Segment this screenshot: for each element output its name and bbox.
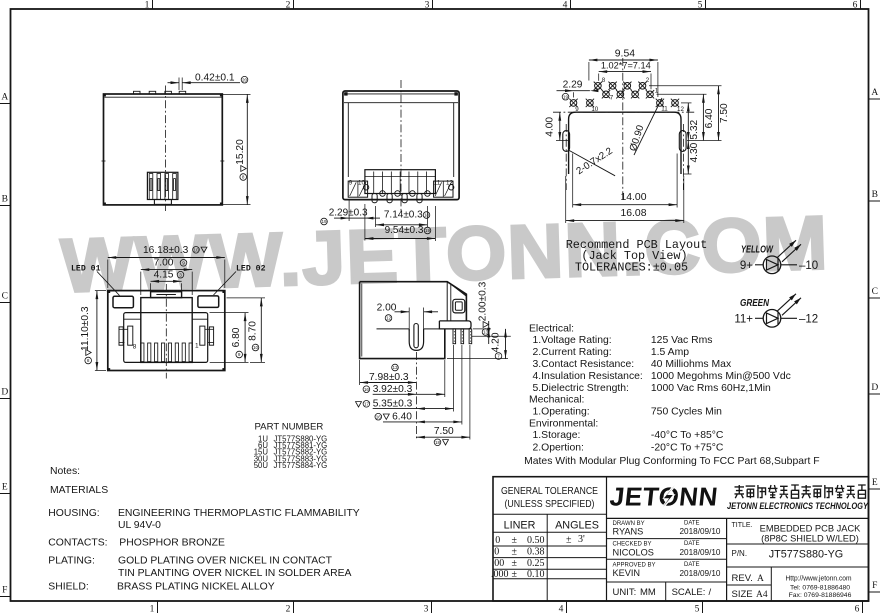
svg-text:C: C bbox=[872, 287, 878, 297]
svg-text:5: 5 bbox=[698, 1, 703, 11]
svg-text:13: 13 bbox=[392, 365, 398, 370]
svg-text:Notes:: Notes: bbox=[50, 466, 80, 477]
svg-text:7: 7 bbox=[497, 354, 500, 359]
svg-text:Electrical:: Electrical: bbox=[529, 323, 574, 334]
svg-text:.000: .000 bbox=[491, 569, 509, 580]
svg-text:11.10±0.3: 11.10±0.3 bbox=[80, 306, 91, 351]
svg-text:7: 7 bbox=[610, 95, 614, 102]
svg-text:1.Storage:: 1.Storage: bbox=[533, 430, 581, 441]
svg-text:-40°C To +85°C: -40°C To +85°C bbox=[651, 430, 724, 441]
svg-text:4: 4 bbox=[563, 1, 568, 11]
svg-text:4.20: 4.20 bbox=[491, 332, 502, 352]
svg-text:±: ± bbox=[566, 535, 572, 546]
svg-text:1000 Vac Rms 60Hz,1Min: 1000 Vac Rms 60Hz,1Min bbox=[651, 383, 771, 394]
svg-text:±: ± bbox=[512, 558, 518, 569]
svg-text:A4: A4 bbox=[756, 590, 768, 600]
svg-text:A: A bbox=[871, 88, 878, 98]
svg-text:2.29±0.3: 2.29±0.3 bbox=[329, 207, 368, 218]
svg-text:±: ± bbox=[512, 535, 518, 546]
svg-text:/: / bbox=[709, 587, 712, 598]
svg-text:YELLOW: YELLOW bbox=[741, 244, 774, 255]
svg-text:16.18±0.3: 16.18±0.3 bbox=[143, 245, 189, 256]
svg-text:7.98±0.3: 7.98±0.3 bbox=[369, 372, 409, 383]
svg-text:Mates With Modular Plug Confor: Mates With Modular Plug Conforming To FC… bbox=[524, 456, 819, 467]
svg-text:1: 1 bbox=[150, 605, 155, 613]
svg-text:16: 16 bbox=[376, 414, 382, 419]
svg-text:.00: .00 bbox=[492, 558, 505, 569]
svg-text:4: 4 bbox=[559, 605, 564, 613]
svg-text:11: 11 bbox=[434, 180, 441, 187]
svg-text:0.50: 0.50 bbox=[527, 535, 545, 546]
svg-text:8: 8 bbox=[242, 175, 245, 180]
svg-text:6.80: 6.80 bbox=[231, 327, 242, 347]
svg-text:DATE: DATE bbox=[684, 562, 700, 568]
svg-text:UL 94V-0: UL 94V-0 bbox=[118, 520, 161, 531]
svg-text:Tel: 0769-81886480: Tel: 0769-81886480 bbox=[790, 585, 850, 592]
svg-text:6: 6 bbox=[855, 605, 860, 613]
svg-text:3: 3 bbox=[179, 272, 182, 277]
svg-text:3.92±0.3: 3.92±0.3 bbox=[373, 384, 413, 395]
svg-text:9.54±0.3: 9.54±0.3 bbox=[385, 225, 424, 236]
svg-text:Mechanical:: Mechanical: bbox=[529, 395, 584, 406]
svg-text:4.30: 4.30 bbox=[689, 142, 700, 162]
svg-text:0: 0 bbox=[495, 535, 500, 546]
svg-text:7.00: 7.00 bbox=[154, 258, 174, 269]
svg-text:C: C bbox=[2, 292, 8, 302]
svg-text:8: 8 bbox=[87, 358, 90, 363]
svg-text:2: 2 bbox=[286, 1, 291, 11]
svg-text:2.Opertion:: 2.Opertion: bbox=[533, 443, 584, 454]
svg-text:1: 1 bbox=[195, 343, 199, 350]
svg-text:Environmental:: Environmental: bbox=[529, 418, 598, 429]
svg-text:JT577S884-YG: JT577S884-YG bbox=[274, 461, 328, 470]
svg-text:P/N.: P/N. bbox=[732, 549, 748, 558]
svg-text:7.50: 7.50 bbox=[434, 426, 454, 437]
svg-text:4.00: 4.00 bbox=[544, 117, 555, 137]
svg-text:3.Contact Resistance:: 3.Contact Resistance: bbox=[533, 359, 635, 370]
svg-text:.0: .0 bbox=[492, 547, 500, 558]
svg-text:2018/09/10: 2018/09/10 bbox=[680, 569, 721, 578]
svg-text:13: 13 bbox=[483, 330, 489, 335]
svg-text:D: D bbox=[1, 388, 8, 398]
svg-text:-20°C To +75°C: -20°C To +75°C bbox=[651, 443, 724, 454]
svg-text:18: 18 bbox=[435, 440, 441, 445]
svg-text:JT577S880-YG: JT577S880-YG bbox=[769, 549, 843, 561]
svg-text:GOLD PLATING OVER NICKEL IN CO: GOLD PLATING OVER NICKEL IN CONTACT bbox=[118, 555, 333, 566]
svg-text:8: 8 bbox=[133, 344, 137, 351]
svg-text:10: 10 bbox=[591, 106, 598, 113]
svg-text:1.5 Amp: 1.5 Amp bbox=[651, 347, 689, 358]
svg-text:–10: –10 bbox=[799, 260, 818, 272]
svg-text:PHOSPHOR BRONZE: PHOSPHOR BRONZE bbox=[119, 537, 225, 548]
svg-text:9: 9 bbox=[238, 352, 241, 357]
svg-text:9+: 9+ bbox=[740, 260, 753, 272]
svg-text:F: F bbox=[2, 586, 7, 596]
svg-text:9: 9 bbox=[349, 180, 353, 187]
svg-text:LED 01: LED 01 bbox=[71, 264, 101, 273]
svg-text:2018/09/10: 2018/09/10 bbox=[680, 527, 721, 536]
svg-text:15.20: 15.20 bbox=[235, 139, 246, 165]
svg-text:GENERAL TOLERANCE: GENERAL TOLERANCE bbox=[501, 486, 598, 497]
svg-text:HOUSING:: HOUSING: bbox=[48, 508, 99, 519]
svg-text:E: E bbox=[2, 483, 8, 493]
svg-text:(UNLESS SPECIFIED): (UNLESS SPECIFIED) bbox=[505, 499, 595, 510]
svg-text:6.40: 6.40 bbox=[392, 412, 412, 423]
svg-text:(8P8C SHIELD W/LED): (8P8C SHIELD W/LED) bbox=[761, 533, 859, 543]
svg-text:TITLE.: TITLE. bbox=[732, 522, 753, 529]
svg-text:4.Insulation Resistance:: 4.Insulation Resistance: bbox=[533, 371, 643, 382]
svg-text:SCALE:: SCALE: bbox=[672, 587, 706, 598]
svg-text:14.00: 14.00 bbox=[620, 192, 646, 203]
svg-text:A: A bbox=[757, 574, 764, 584]
svg-text:5: 5 bbox=[695, 605, 700, 613]
svg-text:125 Vac Rms: 125 Vac Rms bbox=[651, 335, 713, 346]
svg-text:10: 10 bbox=[193, 247, 199, 252]
svg-text:±: ± bbox=[512, 569, 518, 580]
svg-text:E: E bbox=[872, 478, 878, 488]
svg-text:1: 1 bbox=[145, 1, 150, 11]
svg-text:18: 18 bbox=[424, 213, 430, 218]
svg-text:DATE: DATE bbox=[684, 520, 700, 526]
svg-text:6: 6 bbox=[853, 1, 858, 11]
svg-text:±: ± bbox=[512, 547, 518, 558]
svg-text:19: 19 bbox=[563, 94, 569, 99]
svg-text:0.25: 0.25 bbox=[527, 558, 545, 569]
svg-text:1.02*7=7.14: 1.02*7=7.14 bbox=[601, 61, 651, 71]
svg-text:BRASS PLATING NICKEL ALLOY: BRASS PLATING NICKEL ALLOY bbox=[117, 582, 275, 593]
svg-text:9: 9 bbox=[182, 260, 185, 265]
svg-text:EMBEDDED PCB JACK: EMBEDDED PCB JACK bbox=[760, 524, 862, 534]
svg-text:9.54: 9.54 bbox=[615, 48, 635, 59]
svg-text:16: 16 bbox=[364, 387, 370, 392]
svg-text:2.00±0.3: 2.00±0.3 bbox=[478, 281, 489, 321]
svg-text:2.29: 2.29 bbox=[563, 79, 583, 90]
svg-text:11+: 11+ bbox=[734, 314, 753, 326]
svg-text:Fax: 0769-81886946: Fax: 0769-81886946 bbox=[789, 592, 852, 599]
svg-text:1.Operating:: 1.Operating: bbox=[533, 407, 590, 418]
svg-text:11: 11 bbox=[661, 106, 668, 113]
svg-text:750 Cycles Min: 750 Cycles Min bbox=[651, 407, 722, 418]
svg-text:RYANS: RYANS bbox=[613, 527, 644, 537]
svg-text:TIN PLANTING OVER NICKEL IN SO: TIN PLANTING OVER NICKEL IN SOLDER AREA bbox=[118, 568, 352, 579]
svg-text:B: B bbox=[2, 195, 8, 205]
svg-text:Http://www.jetonn.com: Http://www.jetonn.com bbox=[786, 576, 852, 583]
svg-text:40 Milliohms Max: 40 Milliohms Max bbox=[651, 359, 732, 370]
svg-text:17: 17 bbox=[364, 401, 370, 406]
svg-text:5.Dielectric Strength:: 5.Dielectric Strength: bbox=[533, 383, 629, 394]
svg-text:2: 2 bbox=[646, 77, 650, 84]
svg-text:12: 12 bbox=[386, 316, 392, 321]
svg-text:PLATING:: PLATING: bbox=[48, 555, 95, 566]
svg-text:SIZE: SIZE bbox=[732, 589, 753, 600]
svg-text:8: 8 bbox=[602, 77, 606, 84]
svg-text:MM: MM bbox=[640, 587, 656, 598]
svg-text:5.32: 5.32 bbox=[689, 119, 700, 139]
svg-text:2.00: 2.00 bbox=[377, 303, 397, 314]
svg-text:0.10: 0.10 bbox=[527, 569, 545, 580]
svg-text:3: 3 bbox=[425, 1, 430, 11]
svg-text:12: 12 bbox=[677, 106, 684, 113]
svg-text:0.38: 0.38 bbox=[527, 547, 545, 558]
svg-text:ENGINEERING THERMOPLASTIC FLAM: ENGINEERING THERMOPLASTIC FLAMMABILITY bbox=[118, 508, 360, 519]
svg-text:6.40: 6.40 bbox=[704, 108, 715, 128]
svg-text:5.35±0.3: 5.35±0.3 bbox=[373, 399, 413, 410]
svg-text:DATE: DATE bbox=[684, 541, 700, 547]
svg-text:19: 19 bbox=[321, 219, 327, 224]
svg-text:16.08: 16.08 bbox=[620, 208, 646, 219]
svg-text:8.70: 8.70 bbox=[248, 321, 259, 341]
svg-text:1.Voltage Rating:: 1.Voltage Rating: bbox=[533, 335, 612, 346]
svg-text:D: D bbox=[871, 383, 878, 393]
svg-text:12: 12 bbox=[446, 180, 453, 187]
svg-text:MATERIALS: MATERIALS bbox=[50, 485, 108, 496]
svg-text:2.Current Rating:: 2.Current Rating: bbox=[533, 347, 612, 358]
svg-text:B: B bbox=[872, 190, 878, 200]
svg-text:9: 9 bbox=[575, 106, 579, 113]
svg-text:50U: 50U bbox=[254, 461, 269, 470]
svg-text:ANGLES: ANGLES bbox=[555, 520, 599, 532]
svg-text:10: 10 bbox=[358, 180, 365, 187]
svg-text:REV.: REV. bbox=[732, 573, 753, 584]
svg-text:19: 19 bbox=[425, 228, 431, 233]
svg-text:UNIT:: UNIT: bbox=[613, 587, 637, 598]
svg-text:2018/09/10: 2018/09/10 bbox=[680, 548, 721, 557]
svg-text:JETONN ELECTRONICS TECHNOLOGY: JETONN ELECTRONICS TECHNOLOGY bbox=[727, 501, 869, 511]
svg-text:–12: –12 bbox=[799, 314, 818, 326]
svg-text:TOLERANCES:±0.05: TOLERANCES:±0.05 bbox=[575, 261, 688, 275]
svg-text:LED 02: LED 02 bbox=[236, 264, 266, 273]
svg-text:7.14±0.3: 7.14±0.3 bbox=[384, 210, 423, 221]
svg-text:F: F bbox=[872, 581, 877, 591]
svg-text:7.50: 7.50 bbox=[719, 103, 730, 123]
svg-text:NICOLOS: NICOLOS bbox=[613, 547, 654, 557]
svg-text:KEVIN: KEVIN bbox=[613, 568, 641, 578]
svg-text:Ø0.90: Ø0.90 bbox=[628, 123, 647, 152]
svg-text:3: 3 bbox=[424, 605, 429, 613]
svg-text:4.15: 4.15 bbox=[154, 269, 174, 280]
svg-text:2: 2 bbox=[286, 605, 291, 613]
svg-text:20: 20 bbox=[242, 77, 248, 82]
svg-text:3': 3' bbox=[578, 534, 585, 545]
svg-text:10: 10 bbox=[253, 345, 259, 350]
svg-text:CONTACTS:: CONTACTS: bbox=[48, 537, 107, 548]
svg-text:LINER: LINER bbox=[504, 520, 536, 532]
svg-text:GREEN: GREEN bbox=[740, 298, 770, 309]
svg-text:SHIELD:: SHIELD: bbox=[48, 582, 88, 593]
svg-text:1000 Megohms Min@500 Vdc: 1000 Megohms Min@500 Vdc bbox=[651, 371, 791, 382]
svg-text:PART NUMBER: PART NUMBER bbox=[255, 421, 324, 432]
svg-text:A: A bbox=[1, 93, 8, 103]
svg-text:0.42±0.1: 0.42±0.1 bbox=[195, 72, 235, 83]
